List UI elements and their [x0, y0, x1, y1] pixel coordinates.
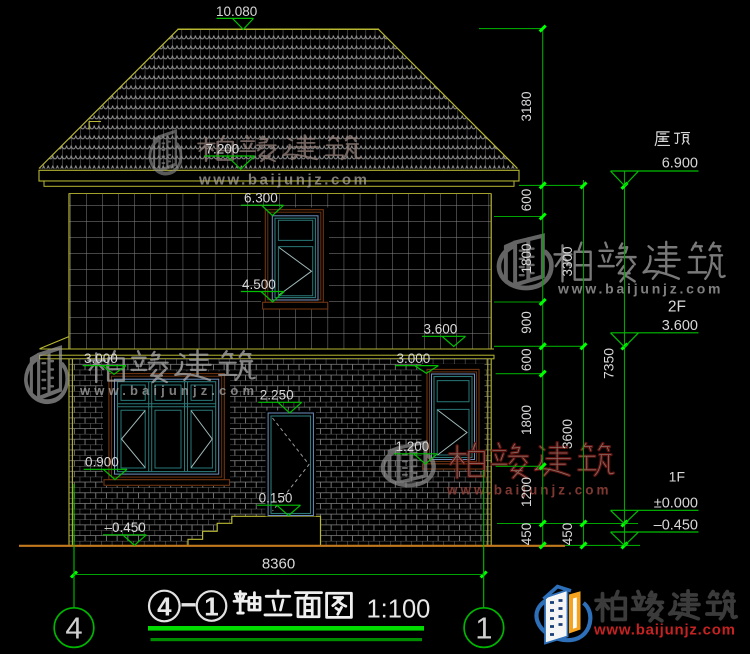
svg-text:2.250: 2.250	[260, 388, 294, 403]
svg-text:3.000: 3.000	[84, 351, 118, 366]
svg-text:600: 600	[519, 349, 534, 372]
svg-text:4: 4	[157, 592, 172, 622]
svg-text:10.080: 10.080	[216, 4, 257, 19]
svg-text:6.900: 6.900	[662, 155, 698, 171]
svg-text:4: 4	[65, 611, 82, 646]
svg-text:7350: 7350	[601, 348, 617, 379]
svg-text:3.600: 3.600	[662, 318, 698, 334]
svg-text:±0.000: ±0.000	[654, 495, 698, 511]
svg-text:1200: 1200	[519, 477, 534, 507]
svg-text:6.300: 6.300	[244, 191, 278, 206]
svg-text:1: 1	[475, 611, 492, 646]
svg-text:3.600: 3.600	[424, 322, 458, 337]
svg-text:1F: 1F	[669, 469, 685, 485]
svg-text:3.000: 3.000	[397, 351, 431, 366]
svg-text:1: 1	[204, 592, 218, 622]
svg-text:900: 900	[519, 311, 534, 334]
svg-text:4.500: 4.500	[242, 277, 276, 292]
svg-text:1800: 1800	[519, 243, 534, 273]
svg-text:1.200: 1.200	[396, 439, 430, 454]
svg-text:0.900: 0.900	[85, 455, 119, 470]
svg-text:2F: 2F	[668, 299, 686, 316]
svg-text:1:100: 1:100	[367, 596, 431, 624]
svg-text:1800: 1800	[519, 405, 534, 435]
svg-text:450: 450	[519, 523, 534, 546]
svg-text:www.baijunjz.com: www.baijunjz.com	[198, 172, 369, 189]
svg-text:0.150: 0.150	[259, 491, 293, 506]
svg-text:3180: 3180	[519, 91, 534, 121]
svg-text:600: 600	[519, 189, 534, 212]
svg-text:3600: 3600	[560, 419, 575, 449]
svg-text:www.baijunjz.com: www.baijunjz.com	[557, 281, 722, 297]
svg-text:450: 450	[560, 523, 575, 546]
svg-text:8360: 8360	[262, 556, 295, 573]
svg-text:–0.450: –0.450	[105, 520, 146, 535]
svg-text:3300: 3300	[560, 246, 575, 276]
svg-text:–0.450: –0.450	[654, 517, 698, 533]
svg-text:www.baijunjz.com: www.baijunjz.com	[593, 622, 735, 639]
svg-text:7.200: 7.200	[206, 141, 240, 156]
